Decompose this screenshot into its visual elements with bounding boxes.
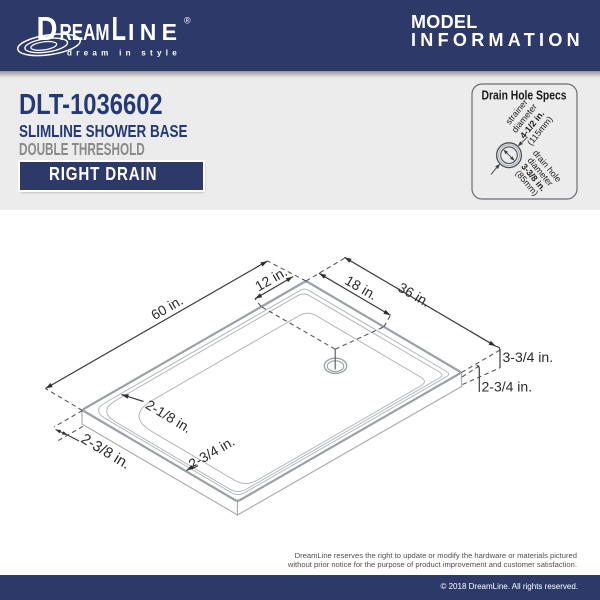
svg-text:2-3/4 in.: 2-3/4 in. xyxy=(482,379,533,395)
svg-text:dream in style: dream in style xyxy=(67,48,181,57)
svg-text:L: L xyxy=(112,11,127,48)
svg-text:REAM: REAM xyxy=(60,19,110,45)
svg-text:INE: INE xyxy=(128,19,177,45)
svg-text:3-3/4 in.: 3-3/4 in. xyxy=(503,349,554,365)
svg-text:D: D xyxy=(37,11,58,48)
svg-text:®: ® xyxy=(184,16,191,26)
svg-text:36 in.: 36 in. xyxy=(395,279,433,310)
